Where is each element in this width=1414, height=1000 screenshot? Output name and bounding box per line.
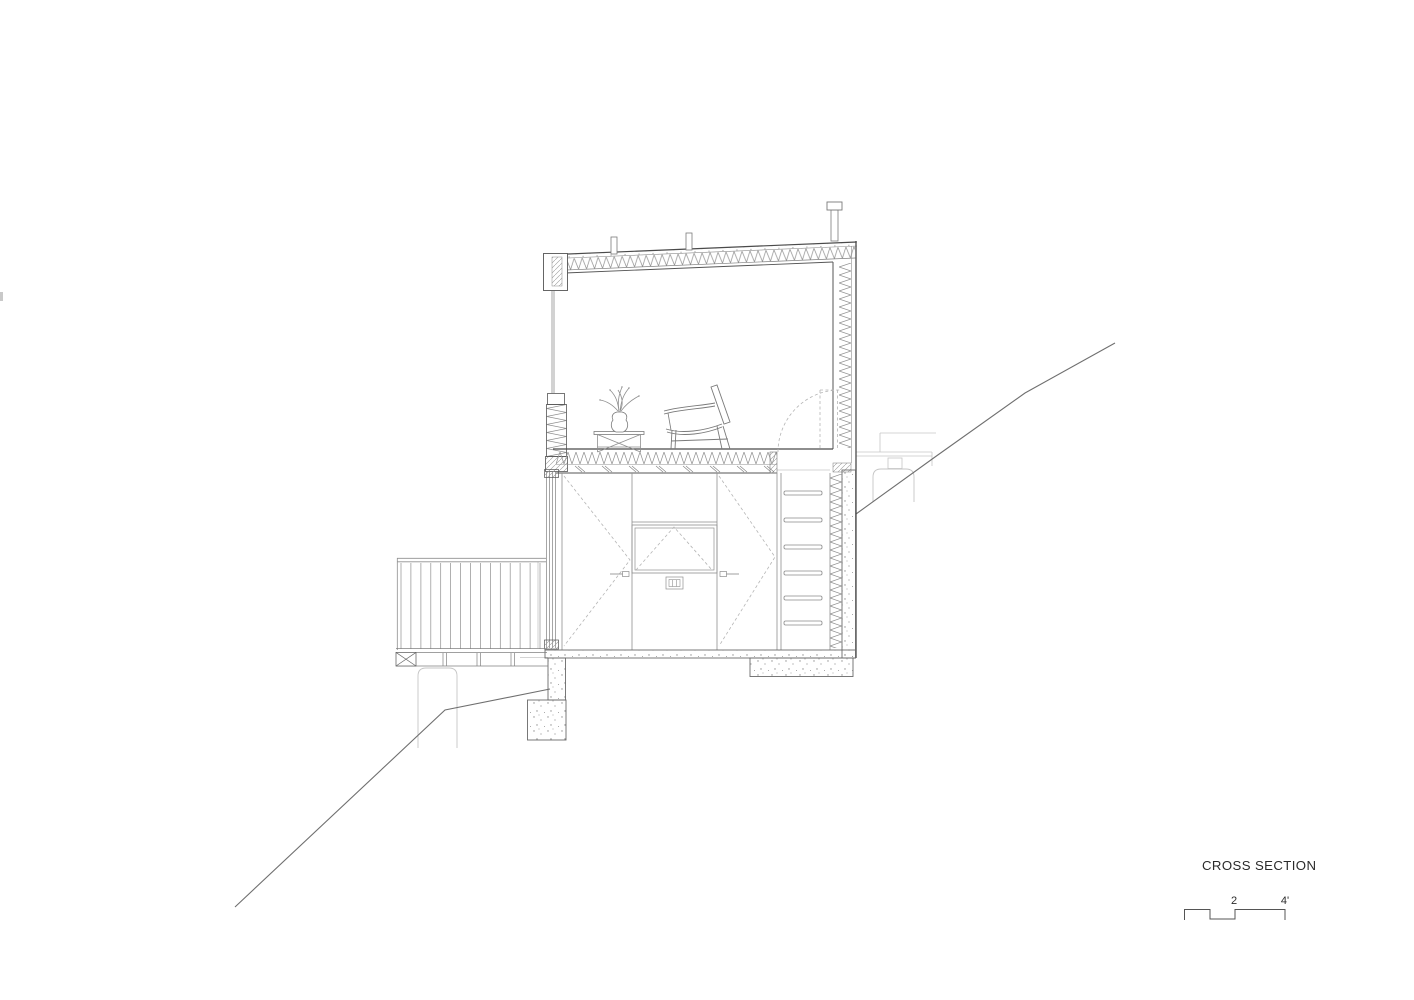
stem-wall-left <box>548 658 566 700</box>
niche-inner-frame <box>635 528 714 570</box>
window-mid-frame <box>548 394 565 405</box>
hatch-swing-arc <box>778 390 840 452</box>
terrain-slope-left <box>235 689 550 907</box>
glazed-door <box>545 470 559 650</box>
concrete-wall <box>842 470 856 658</box>
door-glazing-lines <box>547 472 556 648</box>
terrain <box>235 343 1115 907</box>
window-glazing-lines <box>552 291 554 393</box>
furniture <box>594 385 730 452</box>
chimney-cap <box>827 202 842 210</box>
chair-backrest <box>711 385 730 424</box>
wall-insulation-upper <box>839 263 851 448</box>
deck-joist-ends <box>443 653 515 666</box>
floor-insulation <box>556 452 777 464</box>
chair-seat <box>666 424 722 434</box>
door-sill-frame <box>545 640 559 649</box>
footing-step-right <box>750 658 853 677</box>
footing-left <box>528 700 567 740</box>
roof-assembly <box>544 242 857 271</box>
guardrail-top-rail <box>397 558 546 650</box>
deck-concrete-pier <box>418 668 457 748</box>
ladder-rung <box>784 545 822 549</box>
terrace-platform-lines <box>856 433 936 466</box>
head-blocking-hatch <box>552 257 562 286</box>
title-block: CROSS SECTION 2 4' <box>1185 858 1317 920</box>
roof-vent-left <box>611 237 617 254</box>
deck <box>396 558 548 666</box>
terrace-curb <box>888 458 902 469</box>
deck-post-ghost <box>520 562 548 658</box>
chair-legs <box>671 426 730 449</box>
lower-level-interior <box>562 473 830 650</box>
ladder <box>784 491 822 625</box>
slab-on-grade <box>545 650 856 658</box>
niche-latch-left <box>623 572 630 577</box>
hatch-open-outline <box>820 390 838 448</box>
scale-bar <box>1185 910 1286 921</box>
cabinet-door-swing-right <box>719 476 775 646</box>
ladder-rung <box>784 491 822 495</box>
ladder-rung <box>784 518 822 522</box>
chair-arm-support <box>668 413 671 430</box>
ladder-rung <box>784 621 822 625</box>
wall-insulation-lower <box>830 474 842 648</box>
scale-label-mid: 2 <box>1231 895 1237 907</box>
door-head-frame <box>545 470 559 478</box>
lounge-chair <box>664 385 730 449</box>
wall-vent-outer <box>666 577 683 589</box>
drawing-sheet: CROSS SECTION 2 4' <box>0 0 1414 1000</box>
drawing-title: CROSS SECTION <box>1202 858 1316 873</box>
rear-terrace-ghost <box>856 433 936 502</box>
scale-label-end: 4' <box>1281 895 1289 907</box>
plant-leaves <box>600 387 639 412</box>
floor-assembly <box>553 449 833 473</box>
terrain-slope-right <box>856 343 1115 514</box>
joist-hatch-ticks <box>575 466 774 472</box>
vase <box>611 412 627 432</box>
ladder-rung <box>784 596 822 600</box>
window-wall-left <box>544 254 568 472</box>
cross-section-drawing: CROSS SECTION 2 4' <box>0 0 1414 1000</box>
niche-outer-frame <box>632 525 717 573</box>
sheet-edge-mark <box>0 292 3 301</box>
niche-flap-swing <box>636 527 712 570</box>
wall-vent-slots <box>673 580 677 587</box>
wall-right-lower <box>830 470 856 658</box>
ladder-rung <box>784 571 822 575</box>
wall-vent-inner <box>669 580 680 587</box>
cabinet-door-swing-left <box>564 476 630 646</box>
plant-in-vase <box>599 386 639 432</box>
roof-vent-right <box>686 233 692 250</box>
guardrail-balusters <box>401 563 540 649</box>
chair-armrest <box>664 403 715 414</box>
niche-latch-right <box>720 572 727 577</box>
hatch-swing <box>778 390 840 452</box>
foundation <box>528 650 856 740</box>
chimney-flue <box>831 210 838 241</box>
